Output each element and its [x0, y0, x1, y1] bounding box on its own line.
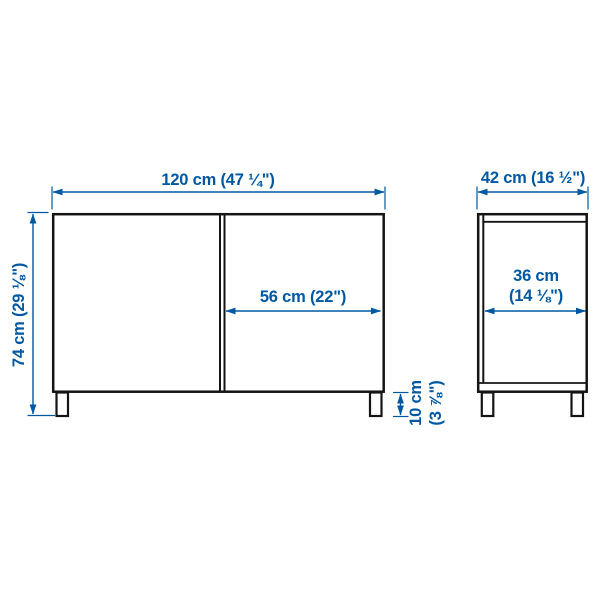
- dimension-diagram: 120 cm (47 ¼") 42 cm (16 ½") 74 cm (29 ⅛…: [0, 0, 600, 600]
- door-width-label: 56 cm (22"): [203, 287, 403, 307]
- leg-height-label-cm: 10 cm: [406, 380, 426, 426]
- inner-depth-label: 36 cm (14 ⅛"): [476, 266, 596, 306]
- inner-depth-label-cm: 36 cm: [476, 266, 596, 286]
- front-right-leg: [370, 393, 382, 417]
- leg-height-label-inch: (3 ⅞"): [426, 380, 446, 426]
- overall-depth-label: 42 cm (16 ½"): [453, 168, 600, 188]
- overall-height-label: 74 cm (29 ⅛"): [9, 263, 29, 367]
- side-back-leg: [572, 393, 584, 417]
- front-left-leg: [57, 393, 69, 417]
- side-front-leg: [482, 393, 494, 417]
- leg-height-label: 10 cm (3 ⅞"): [406, 380, 446, 426]
- inner-depth-label-inch: (14 ⅛"): [476, 286, 596, 306]
- overall-width-label: 120 cm (47 ¼"): [98, 170, 338, 190]
